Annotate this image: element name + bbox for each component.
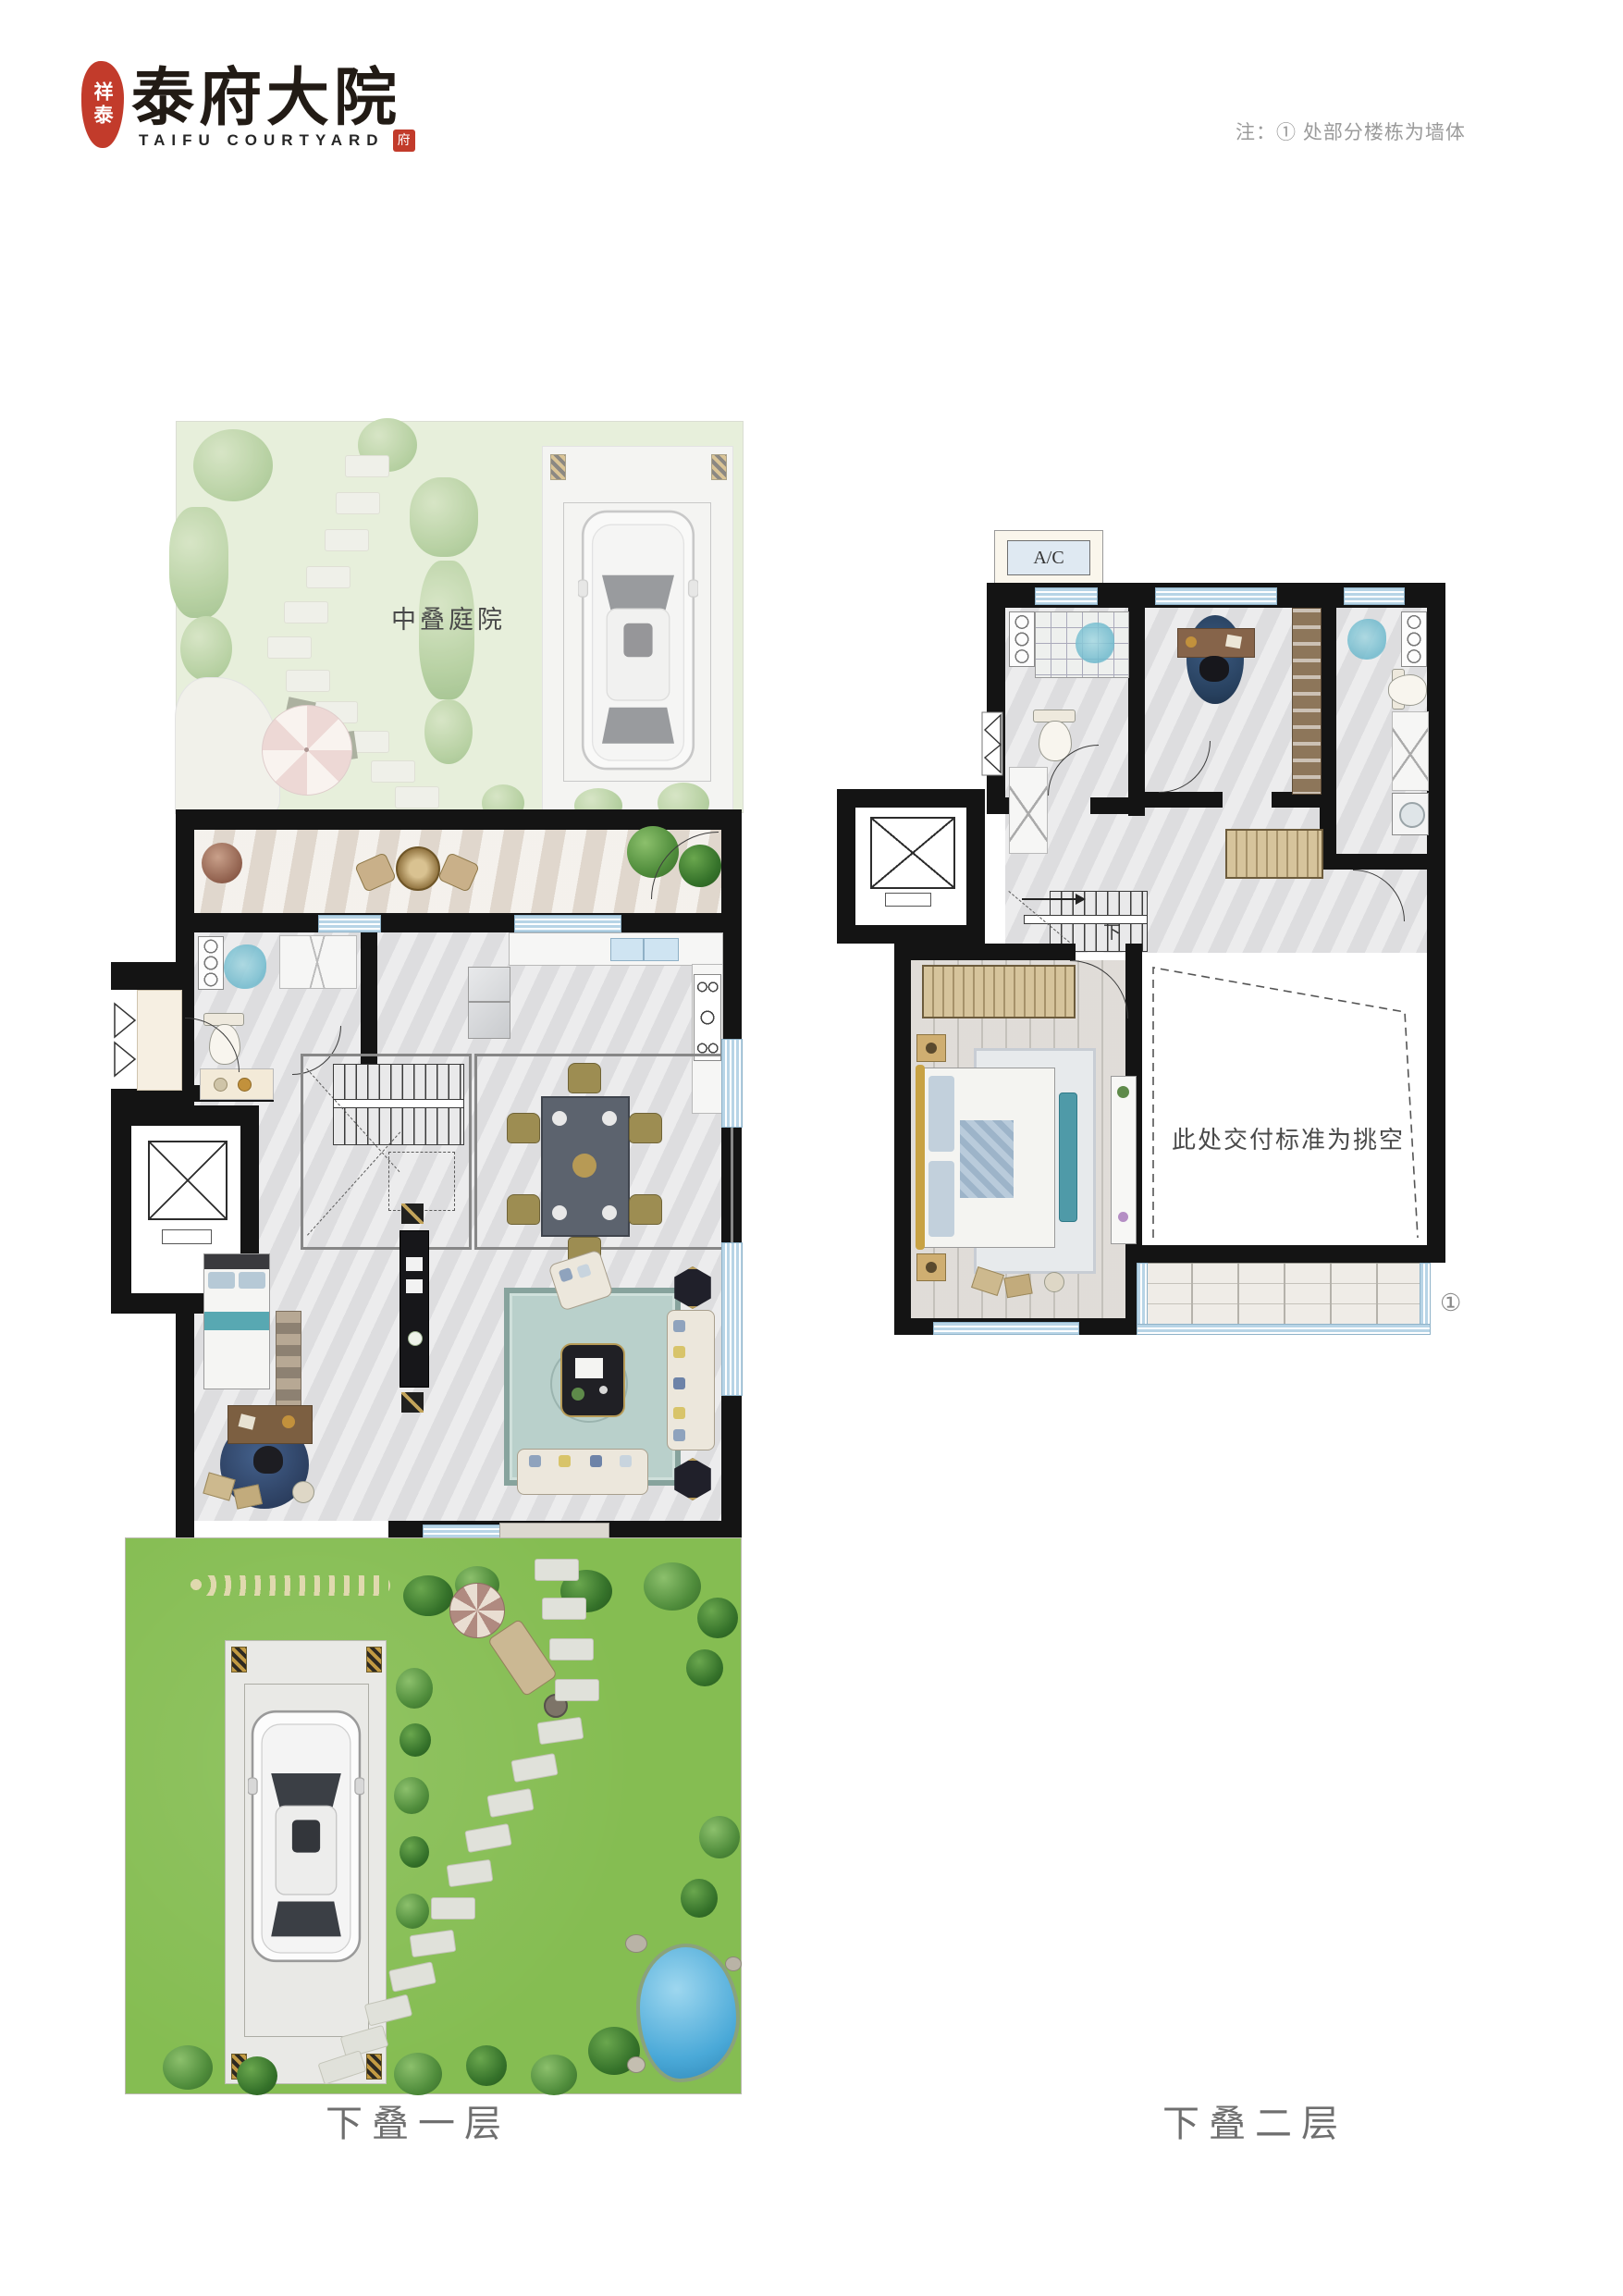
terrace-table	[396, 846, 440, 891]
void-label: 此处交付标准为挑空	[1168, 1121, 1408, 1155]
wall-bath-bottom2	[1090, 797, 1145, 814]
dining-table	[541, 1096, 630, 1237]
brand-seal-text: 祥泰	[89, 81, 117, 128]
table-tray	[575, 1358, 603, 1378]
nightstand	[916, 1253, 946, 1281]
page-subtitle-row: TAIFU COURTYARD 府	[139, 130, 415, 152]
study-desk	[1177, 628, 1255, 658]
stepping-stone	[388, 1961, 436, 1992]
pillow	[673, 1429, 685, 1441]
stairs-down-label: 下	[1103, 919, 1121, 944]
bath-shelf	[198, 936, 224, 990]
dining-chair	[568, 1063, 601, 1093]
bay-window	[721, 1039, 743, 1128]
page-title: 泰府大院	[131, 46, 401, 138]
stepping-stone	[431, 1897, 475, 1920]
washer-icon	[1392, 793, 1429, 835]
stepping-stone	[371, 760, 415, 783]
bed-headboard	[916, 1065, 925, 1250]
shrub-icon	[396, 1894, 429, 1929]
window	[1155, 587, 1277, 605]
wall-terrace-sill	[176, 913, 742, 932]
floorplan-sheet: 祥泰 泰府大院 TAIFU COURTYARD 府 注：① 处部分楼栋为墙体	[0, 0, 1623, 2296]
place-setting	[602, 1111, 617, 1126]
terrace-floor	[194, 830, 721, 913]
bay-window	[721, 1242, 743, 1396]
pillow	[559, 1455, 571, 1467]
bath-vanity	[1392, 711, 1429, 791]
elevator-sill	[162, 1229, 212, 1244]
terrace-chair	[437, 852, 480, 893]
bath-vanity	[1009, 767, 1048, 854]
pillow	[559, 1267, 573, 1282]
window	[318, 915, 381, 932]
stepping-stone	[542, 1598, 586, 1620]
arrow-head	[1076, 894, 1086, 905]
plan-level1: 中叠庭院	[111, 421, 749, 2095]
brand-seal: 祥泰	[81, 61, 124, 148]
garden-level1	[125, 1537, 742, 2094]
stepping-stone	[306, 566, 350, 588]
subtitle-seal: 府	[393, 130, 415, 152]
tea-tray	[1044, 1272, 1064, 1292]
car-icon	[578, 508, 698, 772]
sofa-bottom	[517, 1449, 648, 1495]
sheet-note: 注：① 处部分楼栋为墙体	[1236, 117, 1466, 145]
foyer-nook	[137, 990, 182, 1091]
dining-chair	[629, 1194, 662, 1225]
wall-entry-lower	[111, 1089, 194, 1107]
shrub-icon	[394, 1777, 429, 1814]
hedge-icon	[403, 1575, 453, 1616]
stepping-stone	[486, 1788, 534, 1818]
stove-icon	[694, 974, 721, 1061]
desk-item	[1225, 635, 1242, 649]
terrace-chair	[354, 852, 397, 893]
void-dashed-outline	[1142, 953, 1427, 1245]
balcony-rail-bottom	[1137, 1324, 1431, 1335]
pillow	[590, 1455, 602, 1467]
console-table	[400, 1230, 429, 1388]
sink-divider	[643, 939, 645, 960]
console-item	[406, 1257, 423, 1271]
pebble-band	[187, 1575, 390, 1596]
lamp	[926, 1262, 937, 1273]
pillow	[529, 1455, 541, 1467]
window	[1035, 587, 1098, 605]
stepping-stone	[535, 1559, 579, 1581]
stairs-rail	[333, 1099, 464, 1108]
window	[514, 915, 621, 932]
shrub-icon	[681, 1879, 718, 1918]
centerpiece	[572, 1154, 596, 1178]
lounge-chair	[487, 1619, 558, 1697]
sofa-right	[667, 1310, 715, 1450]
plan-level2: A/C	[837, 530, 1475, 1344]
tree-icon	[169, 507, 228, 618]
wheel-stop	[366, 1647, 382, 1673]
pillow	[673, 1346, 685, 1358]
shrub-icon	[163, 2045, 213, 2090]
hedge-icon	[697, 1598, 738, 1638]
openable-window-icon	[981, 711, 1003, 776]
shrub-icon	[699, 1816, 740, 1858]
tea-tray	[292, 1481, 314, 1503]
place-setting	[552, 1205, 567, 1220]
bookshelf	[1292, 608, 1322, 795]
shrub-icon	[400, 1836, 429, 1868]
stairs-void-outline	[388, 1152, 455, 1211]
tree-icon	[180, 616, 232, 681]
bath-counter	[200, 1068, 274, 1100]
shrub-icon	[396, 1668, 433, 1709]
umbrella-pole	[304, 747, 309, 752]
courtyard-faded: 中叠庭院	[176, 421, 744, 813]
wall-marker: ①	[1440, 1289, 1461, 1317]
parking-pad-faded	[542, 446, 733, 812]
dining-chair	[507, 1194, 540, 1225]
pillow	[673, 1407, 685, 1419]
console-flower	[408, 1331, 423, 1346]
pond-rock	[725, 1957, 742, 1971]
stepping-stone	[555, 1679, 599, 1701]
window	[423, 1524, 500, 1538]
nightstand	[916, 1034, 946, 1062]
daybed-pillow	[239, 1272, 265, 1289]
wall-bath2-bottom	[1336, 854, 1427, 870]
pillow	[673, 1320, 685, 1332]
bed-bench	[1059, 1092, 1077, 1222]
dresser	[1111, 1076, 1137, 1244]
caption-level2: 下叠二层	[1116, 2093, 1394, 2147]
stepping-stone	[410, 1930, 457, 1957]
stepping-stone	[447, 1859, 494, 1887]
wheel-stop	[711, 454, 727, 480]
parking-pad	[225, 1640, 387, 2084]
daybed-head	[204, 1254, 269, 1269]
caption-level1: 下叠一层	[279, 2093, 557, 2147]
table-plant	[572, 1388, 584, 1401]
stepping-stone	[345, 455, 389, 477]
courtyard-label: 中叠庭院	[391, 599, 506, 636]
stepping-stone	[395, 786, 439, 809]
parasol-icon	[449, 1583, 505, 1638]
desk-item	[282, 1415, 295, 1428]
tree-icon	[410, 477, 478, 557]
stepping-stone	[286, 670, 330, 692]
bath-shelf	[1401, 611, 1427, 667]
window	[933, 1322, 1079, 1335]
daybed	[203, 1253, 270, 1389]
shower-tray	[279, 935, 357, 989]
counter-item	[214, 1078, 227, 1092]
tree-icon	[193, 429, 273, 501]
study-desk	[227, 1405, 313, 1444]
shower-head	[1076, 623, 1114, 663]
kitchen-sink	[610, 938, 679, 961]
wheel-stop	[366, 2054, 382, 2080]
pond-rock	[627, 2056, 646, 2073]
wall-entry-upper	[111, 962, 194, 990]
ac-platform: A/C	[994, 530, 1103, 586]
desk-item	[1186, 636, 1197, 648]
dining-chair	[629, 1113, 662, 1143]
place-setting	[552, 1111, 567, 1126]
fridge-icon	[468, 967, 510, 1039]
dining-chair	[507, 1113, 540, 1143]
shrub-icon	[466, 2045, 507, 2086]
lamp	[926, 1043, 937, 1054]
shower-head	[1347, 619, 1386, 660]
toilet-icon	[1388, 674, 1427, 706]
shrub-icon	[531, 2055, 577, 2095]
wall-void-bottom	[1142, 1245, 1445, 1263]
table-cup	[599, 1386, 608, 1394]
art-niche	[401, 1392, 424, 1413]
coffee-table	[560, 1343, 625, 1417]
bed-pillows	[928, 1161, 954, 1237]
elevator-icon	[870, 817, 955, 889]
wheel-stop	[550, 454, 566, 480]
balcony-tiles	[1146, 1263, 1421, 1326]
potted-tree-icon	[202, 843, 242, 883]
wall-left-upper	[987, 583, 1005, 814]
wall-study-bottom	[1145, 792, 1223, 808]
elevator-icon	[148, 1141, 227, 1220]
pillow	[620, 1455, 632, 1467]
stairs-arrow	[1022, 898, 1079, 900]
stepping-stone	[284, 601, 328, 623]
hall-closet	[1225, 829, 1323, 879]
bed-throw	[960, 1120, 1014, 1198]
stepping-stone	[336, 492, 380, 514]
bed-pillows	[928, 1076, 954, 1152]
stepping-stone	[537, 1717, 584, 1745]
bed-double	[918, 1068, 1055, 1248]
dresser-plant	[1117, 1086, 1129, 1098]
wardrobe	[922, 965, 1076, 1018]
washer-drum	[1399, 802, 1425, 828]
shrub-icon	[394, 2053, 442, 2095]
shower-towel	[224, 944, 266, 989]
entry-door-icon	[113, 1002, 137, 1078]
void-room: 此处交付标准为挑空	[1142, 953, 1427, 1245]
wall-bed-left	[894, 944, 911, 1335]
pond-rock	[625, 1934, 647, 1953]
place-setting	[602, 1205, 617, 1220]
fridge-split	[469, 1001, 510, 1003]
dresser-flower	[1118, 1212, 1128, 1222]
study-chair	[253, 1446, 283, 1474]
desk-item	[239, 1413, 256, 1429]
stepping-stone	[267, 636, 312, 659]
daybed-pillow	[208, 1272, 235, 1289]
bath-shelf	[1009, 611, 1035, 667]
stepping-stone	[325, 529, 369, 551]
console-item	[406, 1279, 423, 1293]
page-subtitle: TAIFU COURTYARD	[139, 131, 385, 150]
stepping-stone	[510, 1753, 558, 1783]
window	[1344, 587, 1405, 605]
stepping-stone	[464, 1823, 511, 1853]
wall-bed-top	[894, 944, 1076, 960]
pillow	[576, 1264, 591, 1278]
shrub-icon	[686, 1649, 723, 1686]
shrub-icon	[400, 1723, 431, 1757]
counter-item	[238, 1078, 252, 1092]
art-niche	[401, 1204, 424, 1224]
shrub-icon	[237, 2056, 277, 2095]
ac-label: A/C	[1033, 548, 1064, 569]
shrub-icon	[424, 699, 473, 764]
hedge-icon	[644, 1562, 701, 1611]
wall-bath-study	[1128, 608, 1145, 816]
wall-bath-right	[361, 932, 377, 1071]
study-chair	[1199, 656, 1229, 682]
ac-inner: A/C	[1007, 540, 1090, 575]
stepping-stone	[549, 1638, 594, 1660]
daybed-throw	[204, 1312, 269, 1330]
car-icon	[248, 1708, 364, 1965]
elevator-sill	[885, 893, 931, 907]
wheel-stop	[231, 1647, 247, 1673]
pillow	[673, 1377, 685, 1389]
wall-right	[1427, 583, 1445, 1263]
